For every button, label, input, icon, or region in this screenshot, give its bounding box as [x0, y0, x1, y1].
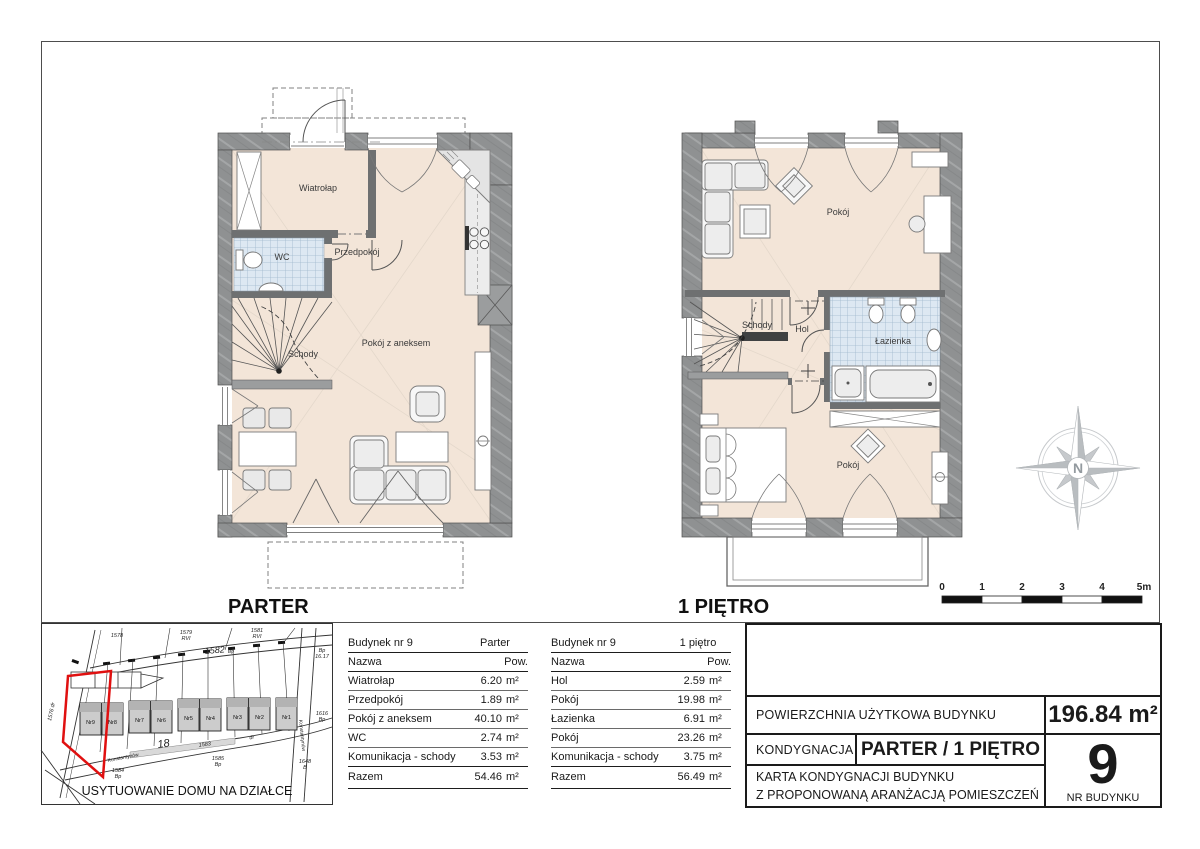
- stove-handle: [465, 226, 469, 250]
- room-label-pokoj-dolny: Pokój: [837, 460, 860, 470]
- terrace-outline: [268, 542, 463, 588]
- table-row: Pokój19.98m²: [551, 691, 731, 710]
- building-number-label: NR BUDYNKU: [1067, 792, 1140, 804]
- area-table-pietro: Budynek nr 91 piętro NazwaPow. Hol2.59m²…: [551, 634, 731, 789]
- compass-letter-n: N: [1073, 460, 1083, 476]
- table-row: NazwaPow.: [551, 653, 731, 672]
- nightstand: [700, 505, 718, 516]
- room-label-pokoj-gorny: Pokój: [827, 207, 850, 217]
- table-row: Wiatrołap6.20m²: [348, 672, 528, 691]
- caption-parter: PARTER: [228, 596, 309, 618]
- floor-plan-parter: Wiatrołap WC Przedpokój Schody Pokój z a…: [218, 88, 512, 618]
- tv-cabinet: [475, 352, 491, 490]
- scale-tick-2: 2: [1019, 582, 1025, 593]
- shelf: [912, 152, 948, 167]
- storey-label: KONDYGNACJA: [756, 743, 853, 757]
- table-row: Budynek nr 9Parter: [348, 634, 528, 653]
- table-title: Budynek nr 9: [348, 638, 462, 649]
- building-number: 9: [1087, 737, 1118, 790]
- site-plan-box: [41, 623, 333, 805]
- area-table-parter: Budynek nr 9Parter NazwaPow. Wiatrołap6.…: [348, 634, 528, 789]
- bathroom: [830, 297, 941, 402]
- toilet: [869, 305, 883, 323]
- scale-tick-4: 4: [1099, 582, 1105, 593]
- table-row: Łazienka6.91m²: [551, 710, 731, 729]
- table-row: Pokój z aneksem40.10m²: [348, 710, 528, 729]
- card-title-cell: KARTA KONDYGNACJI BUDYNKU Z PROPONOWANĄ …: [745, 764, 1046, 808]
- nightstand: [700, 414, 718, 425]
- wardrobe-pietro: [830, 411, 940, 427]
- usable-area-label-cell: POWIERZCHNIA UŻYTKOWA BUDYNKU: [745, 695, 1046, 735]
- table-row: Komunikacja - schody3.75m²: [551, 748, 731, 767]
- floor-plan-pietro: Pokój Schody Hol Łazienka Pokój 1 PIĘTRO: [678, 121, 962, 618]
- bidet: [901, 305, 915, 323]
- storey-value: PARTER / 1 PIĘTRO: [861, 739, 1040, 761]
- table-row: Hol2.59m²: [551, 672, 731, 691]
- scale-tick-5: 5m: [1137, 582, 1152, 593]
- table-row: WC2.74m²: [348, 729, 528, 748]
- coffee-table: [396, 432, 448, 462]
- building-number-cell: 9 NR BUDYNKU: [1044, 733, 1162, 808]
- balcony: [727, 537, 928, 586]
- usable-area-value: 196.84 m²: [1048, 701, 1157, 729]
- table-total-row: Razem56.49m²: [551, 767, 731, 789]
- table-row: NazwaPow.: [348, 653, 528, 672]
- room-label-wiatrolap: Wiatrołap: [299, 183, 337, 193]
- desk-chair: [909, 216, 925, 232]
- table-total-row: Razem54.46m²: [348, 767, 528, 789]
- room-label-schody-parter: Schody: [288, 349, 319, 359]
- storey-value-cell: PARTER / 1 PIĘTRO: [855, 733, 1046, 766]
- room-label-hol: Hol: [795, 324, 809, 334]
- usable-area-label: POWIERZCHNIA UŻYTKOWA BUDYNKU: [756, 708, 996, 722]
- caption-pietro: 1 PIĘTRO: [678, 596, 769, 618]
- table-row: Pokój23.26m²: [551, 729, 731, 748]
- table-row: Komunikacja - schody3.53m²: [348, 748, 528, 767]
- title-block-empty-cell: [745, 623, 1162, 697]
- card-title-line1: KARTA KONDYGNACJI BUDYNKU: [756, 768, 954, 786]
- table-title: Budynek nr 9: [551, 638, 665, 649]
- scale-tick-1: 1: [979, 582, 985, 593]
- scale-tick-0: 0: [939, 582, 945, 593]
- scale-tick-3: 3: [1059, 582, 1065, 593]
- room-label-wc: WC: [275, 252, 290, 262]
- table-row: Budynek nr 91 piętro: [551, 634, 731, 653]
- wardrobe: [237, 152, 261, 230]
- plan-sheet: Wiatrołap WC Przedpokój Schody Pokój z a…: [0, 0, 1200, 849]
- room-label-przedpokoj: Przedpokój: [334, 247, 379, 257]
- desk: [924, 196, 951, 253]
- room-label-pokoj-z-aneksem: Pokój z aneksem: [362, 338, 431, 348]
- storey-label-cell: KONDYGNACJA: [745, 733, 857, 766]
- compass-rose: N: [1016, 406, 1140, 530]
- card-title-line2: Z PROPONOWANĄ ARANŻACJĄ POMIESZCZEŃ: [756, 786, 1039, 804]
- title-block: POWIERZCHNIA UŻYTKOWA BUDYNKU 196.84 m² …: [745, 623, 1162, 808]
- usable-area-value-cell: 196.84 m²: [1044, 695, 1162, 735]
- table-row: Przedpokój1.89m²: [348, 691, 528, 710]
- scale-bar: 0 1 2 3 4 5m: [939, 582, 1151, 603]
- room-label-schody-pietro: Schody: [742, 320, 773, 330]
- room-label-lazienka: Łazienka: [875, 336, 911, 346]
- table-floor: Parter: [462, 638, 528, 649]
- washbasin: [927, 329, 941, 351]
- table-floor: 1 piętro: [665, 638, 731, 649]
